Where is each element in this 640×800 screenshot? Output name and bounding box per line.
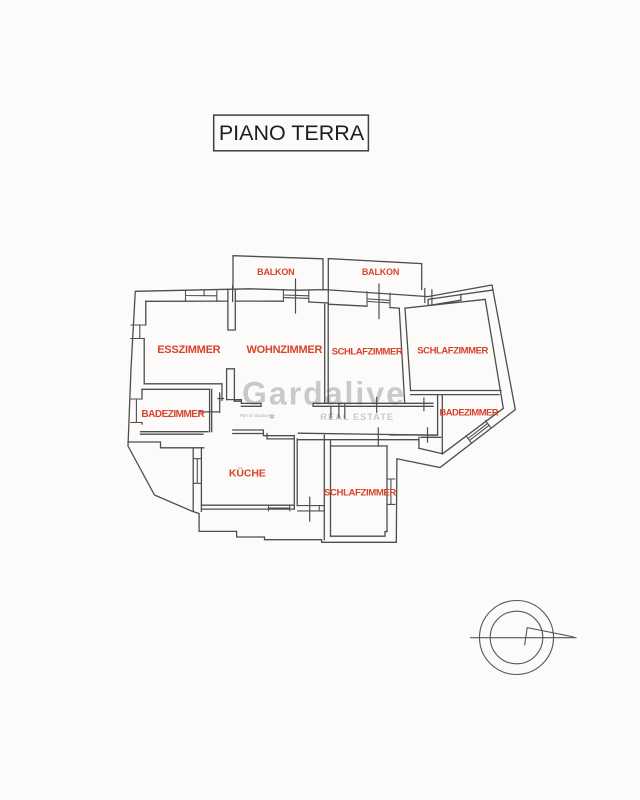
svg-text:KÜCHE: KÜCHE: [229, 467, 266, 480]
svg-text:✻: ✻: [269, 413, 275, 421]
svg-text:WOHNZIMMER: WOHNZIMMER: [246, 344, 322, 356]
svg-text:BADEZIMMER: BADEZIMMER: [141, 409, 205, 420]
svg-text:SCHLAFZIMMER: SCHLAFZIMMER: [332, 346, 403, 357]
svg-text:BALKON: BALKON: [362, 267, 399, 277]
svg-text:BADEZIMMER: BADEZIMMER: [440, 406, 499, 417]
svg-text:SCHLAFZIMMER: SCHLAFZIMMER: [417, 345, 488, 356]
svg-text:Part of Advance: Part of Advance: [240, 413, 270, 418]
svg-text:PIANO TERRA: PIANO TERRA: [219, 121, 365, 145]
svg-text:BALKON: BALKON: [257, 267, 294, 277]
svg-text:ESSZIMMER: ESSZIMMER: [157, 344, 220, 356]
svg-text:SCHLAFZIMMER: SCHLAFZIMMER: [324, 488, 396, 499]
